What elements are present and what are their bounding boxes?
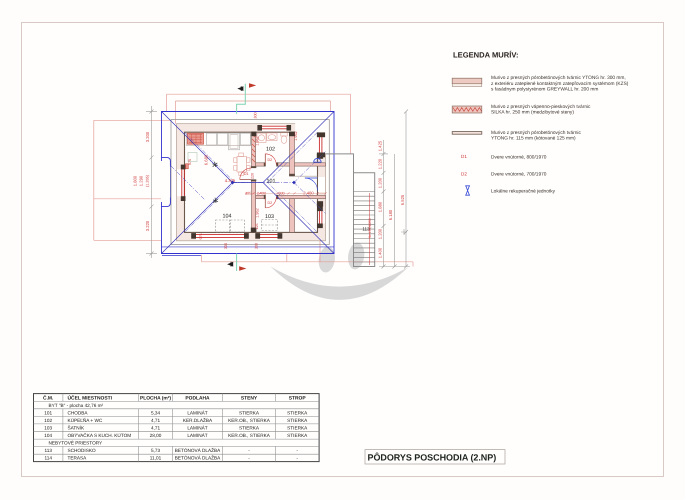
svg-text:9x 176,9/250: 9x 176,9/250 [368, 218, 372, 238]
svg-text:KER.OB., STIERKA: KER.OB., STIERKA [228, 418, 271, 423]
svg-text:300: 300 [255, 243, 259, 249]
svg-text:STIERKA: STIERKA [287, 418, 308, 423]
svg-text:6.680: 6.680 [204, 154, 209, 165]
svg-text:1.800: 1.800 [133, 175, 138, 186]
svg-text:1.400: 1.400 [377, 247, 382, 258]
svg-text:4,71: 4,71 [151, 425, 161, 430]
svg-text:LAMINÁT: LAMINÁT [187, 424, 207, 430]
svg-text:STIERKA: STIERKA [287, 411, 308, 416]
svg-text:1.962: 1.962 [294, 131, 298, 141]
svg-text:1.200: 1.200 [377, 228, 382, 239]
svg-text:SCHODISKO: SCHODISKO [68, 448, 96, 453]
svg-text:(1.265): (1.265) [146, 174, 150, 187]
svg-text:TERASA: TERASA [68, 456, 88, 461]
svg-text:6.180: 6.180 [388, 209, 393, 220]
svg-text:LEGENDA MURÍV:: LEGENDA MURÍV: [453, 51, 519, 60]
svg-text:1.220: 1.220 [377, 158, 382, 169]
svg-text:Murivo z presných vápenno-pies: Murivo z presných vápenno-pieskových tvá… [491, 104, 591, 110]
svg-text:101: 101 [44, 411, 52, 416]
svg-text:D2: D2 [267, 201, 272, 205]
svg-text:104: 104 [223, 214, 232, 220]
svg-text:4,71: 4,71 [151, 418, 161, 423]
svg-text:Č.M.: Č.M. [43, 395, 54, 402]
svg-text:1.962: 1.962 [255, 136, 259, 146]
svg-text:103: 103 [44, 425, 52, 430]
svg-text:28,00: 28,00 [150, 433, 162, 438]
svg-text:PODLAHA: PODLAHA [185, 396, 210, 402]
svg-text:1.962: 1.962 [255, 208, 259, 218]
svg-text:LAMINÁT: LAMINÁT [187, 410, 207, 416]
svg-text:220: 220 [251, 173, 255, 179]
svg-text:Murivo z presných pórobetónový: Murivo z presných pórobetónových tvárnic… [491, 75, 626, 81]
svg-text:ŠATNÍK: ŠATNÍK [68, 424, 85, 430]
svg-text:101: 101 [267, 178, 276, 184]
svg-text:z exteriéru zateplené kontaktn: z exteriéru zateplené kontaktným zatepľo… [491, 81, 629, 87]
svg-text:Dvere vnútorné, 800/1970: Dvere vnútorné, 800/1970 [491, 154, 547, 160]
svg-text:STIERKA: STIERKA [287, 433, 308, 438]
svg-text:D1: D1 [244, 172, 249, 176]
svg-text:SILKA hr. 250 mm (medzibytové: SILKA hr. 250 mm (medzibytové steny) [491, 110, 574, 116]
svg-text:STROP: STROP [289, 396, 307, 402]
svg-text:975: 975 [188, 159, 192, 165]
svg-text:KÚPEĽŇA + WC: KÚPEĽŇA + WC [68, 417, 103, 423]
svg-text:STENY: STENY [241, 396, 258, 402]
svg-text:PLOCHA (m²): PLOCHA (m²) [140, 396, 171, 402]
svg-text:6.525: 6.525 [400, 194, 405, 205]
svg-text:BETÓNOVÁ DLAŽBA: BETÓNOVÁ DLAŽBA [175, 447, 221, 453]
svg-text:1.880: 1.880 [377, 201, 382, 212]
svg-text:975: 975 [199, 234, 203, 240]
svg-text:D2: D2 [267, 158, 272, 162]
svg-text:STIERKA: STIERKA [239, 425, 260, 430]
svg-text:KER.DLAŽBA: KER.DLAŽBA [183, 417, 213, 423]
svg-text:5,34: 5,34 [151, 411, 161, 416]
svg-text:Lokálne rekuperačné jednotky: Lokálne rekuperačné jednotky [491, 189, 556, 195]
svg-text:STIERKA: STIERKA [287, 425, 308, 430]
svg-text:102: 102 [44, 418, 52, 423]
svg-text:KER.OB., STIERKA: KER.OB., STIERKA [228, 433, 271, 438]
svg-text:D1: D1 [461, 154, 467, 159]
svg-text:ÚČEL MIESTNOSTI: ÚČEL MIESTNOSTI [68, 395, 113, 402]
svg-text:104: 104 [44, 433, 52, 438]
svg-text:2.480: 2.480 [303, 190, 314, 195]
svg-text:YTONG hr. 115 mm (kótované 125: YTONG hr. 115 mm (kótované 125 mm) [491, 136, 576, 142]
svg-text:300: 300 [224, 243, 228, 249]
svg-text:s fasádnym polystyrénom GREYWA: s fasádnym polystyrénom GREYWALL hr. 200… [491, 86, 598, 92]
svg-text:STIERKA: STIERKA [239, 411, 260, 416]
svg-text:1.290: 1.290 [139, 175, 144, 186]
svg-text:102: 102 [266, 147, 275, 153]
svg-text:LAMINÁT: LAMINÁT [187, 432, 207, 438]
svg-text:3.220: 3.220 [145, 220, 150, 231]
svg-text:4.375: 4.375 [225, 178, 236, 183]
svg-text:BYT "B" - plocha 42,76 m²: BYT "B" - plocha 42,76 m² [49, 403, 104, 408]
svg-text:1.200: 1.200 [377, 177, 382, 188]
svg-text:OBÝVAČKA S KUCH. KÚTOM: OBÝVAČKA S KUCH. KÚTOM [68, 432, 132, 438]
svg-text:Murivo z presných pórobetónový: Murivo z presných pórobetónových tvárnic [491, 130, 581, 136]
svg-text:11,01: 11,01 [150, 456, 162, 461]
svg-text:BETÓNOVÁ DLAŽBA: BETÓNOVÁ DLAŽBA [175, 455, 221, 461]
svg-text:300: 300 [254, 112, 258, 118]
svg-text:103: 103 [265, 214, 274, 220]
svg-text:Dvere vnútorné, 700/1970: Dvere vnútorné, 700/1970 [491, 172, 547, 178]
svg-text:NEBYTOVÉ PRIESTORY: NEBYTOVÉ PRIESTORY [49, 440, 104, 446]
svg-text:125: 125 [255, 224, 259, 230]
svg-text:3.200: 3.200 [145, 131, 150, 142]
svg-text:5,73: 5,73 [151, 448, 161, 453]
svg-text:113: 113 [44, 448, 52, 453]
svg-text:1.425: 1.425 [377, 140, 382, 151]
svg-text:CHODBA: CHODBA [68, 411, 89, 416]
svg-text:PÔDORYS POSCHODIA (2.NP): PÔDORYS POSCHODIA (2.NP) [368, 452, 497, 463]
svg-text:D2: D2 [461, 171, 467, 176]
svg-text:114: 114 [44, 456, 52, 461]
